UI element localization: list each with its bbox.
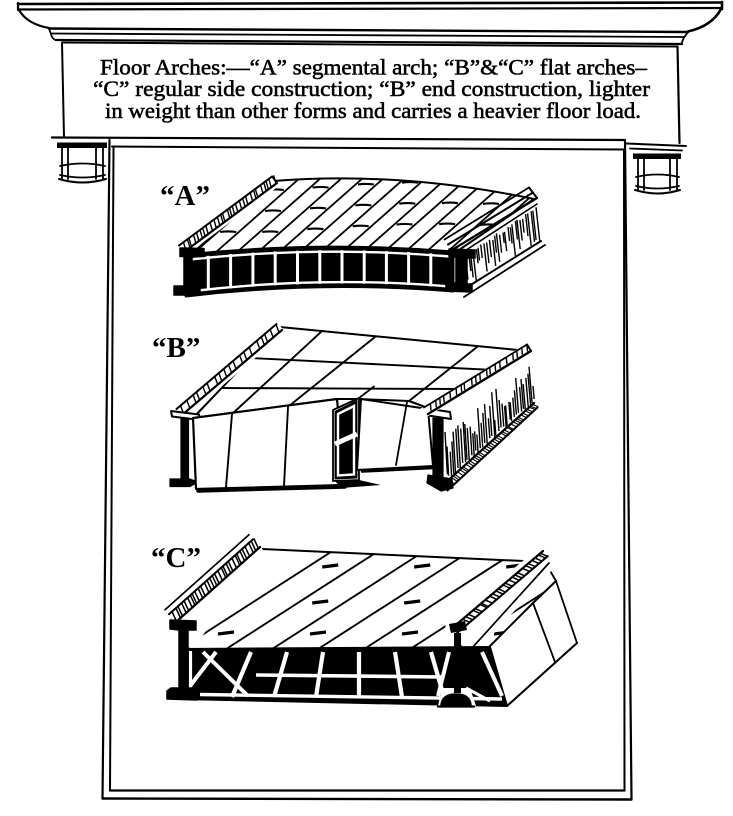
svg-text:in weight than other forms and: in weight than other forms and carries a… [105, 98, 641, 123]
svg-text:“C”: “C” [151, 542, 201, 574]
svg-text:“B”: “B” [152, 332, 200, 364]
svg-text:“A”: “A” [160, 180, 210, 212]
